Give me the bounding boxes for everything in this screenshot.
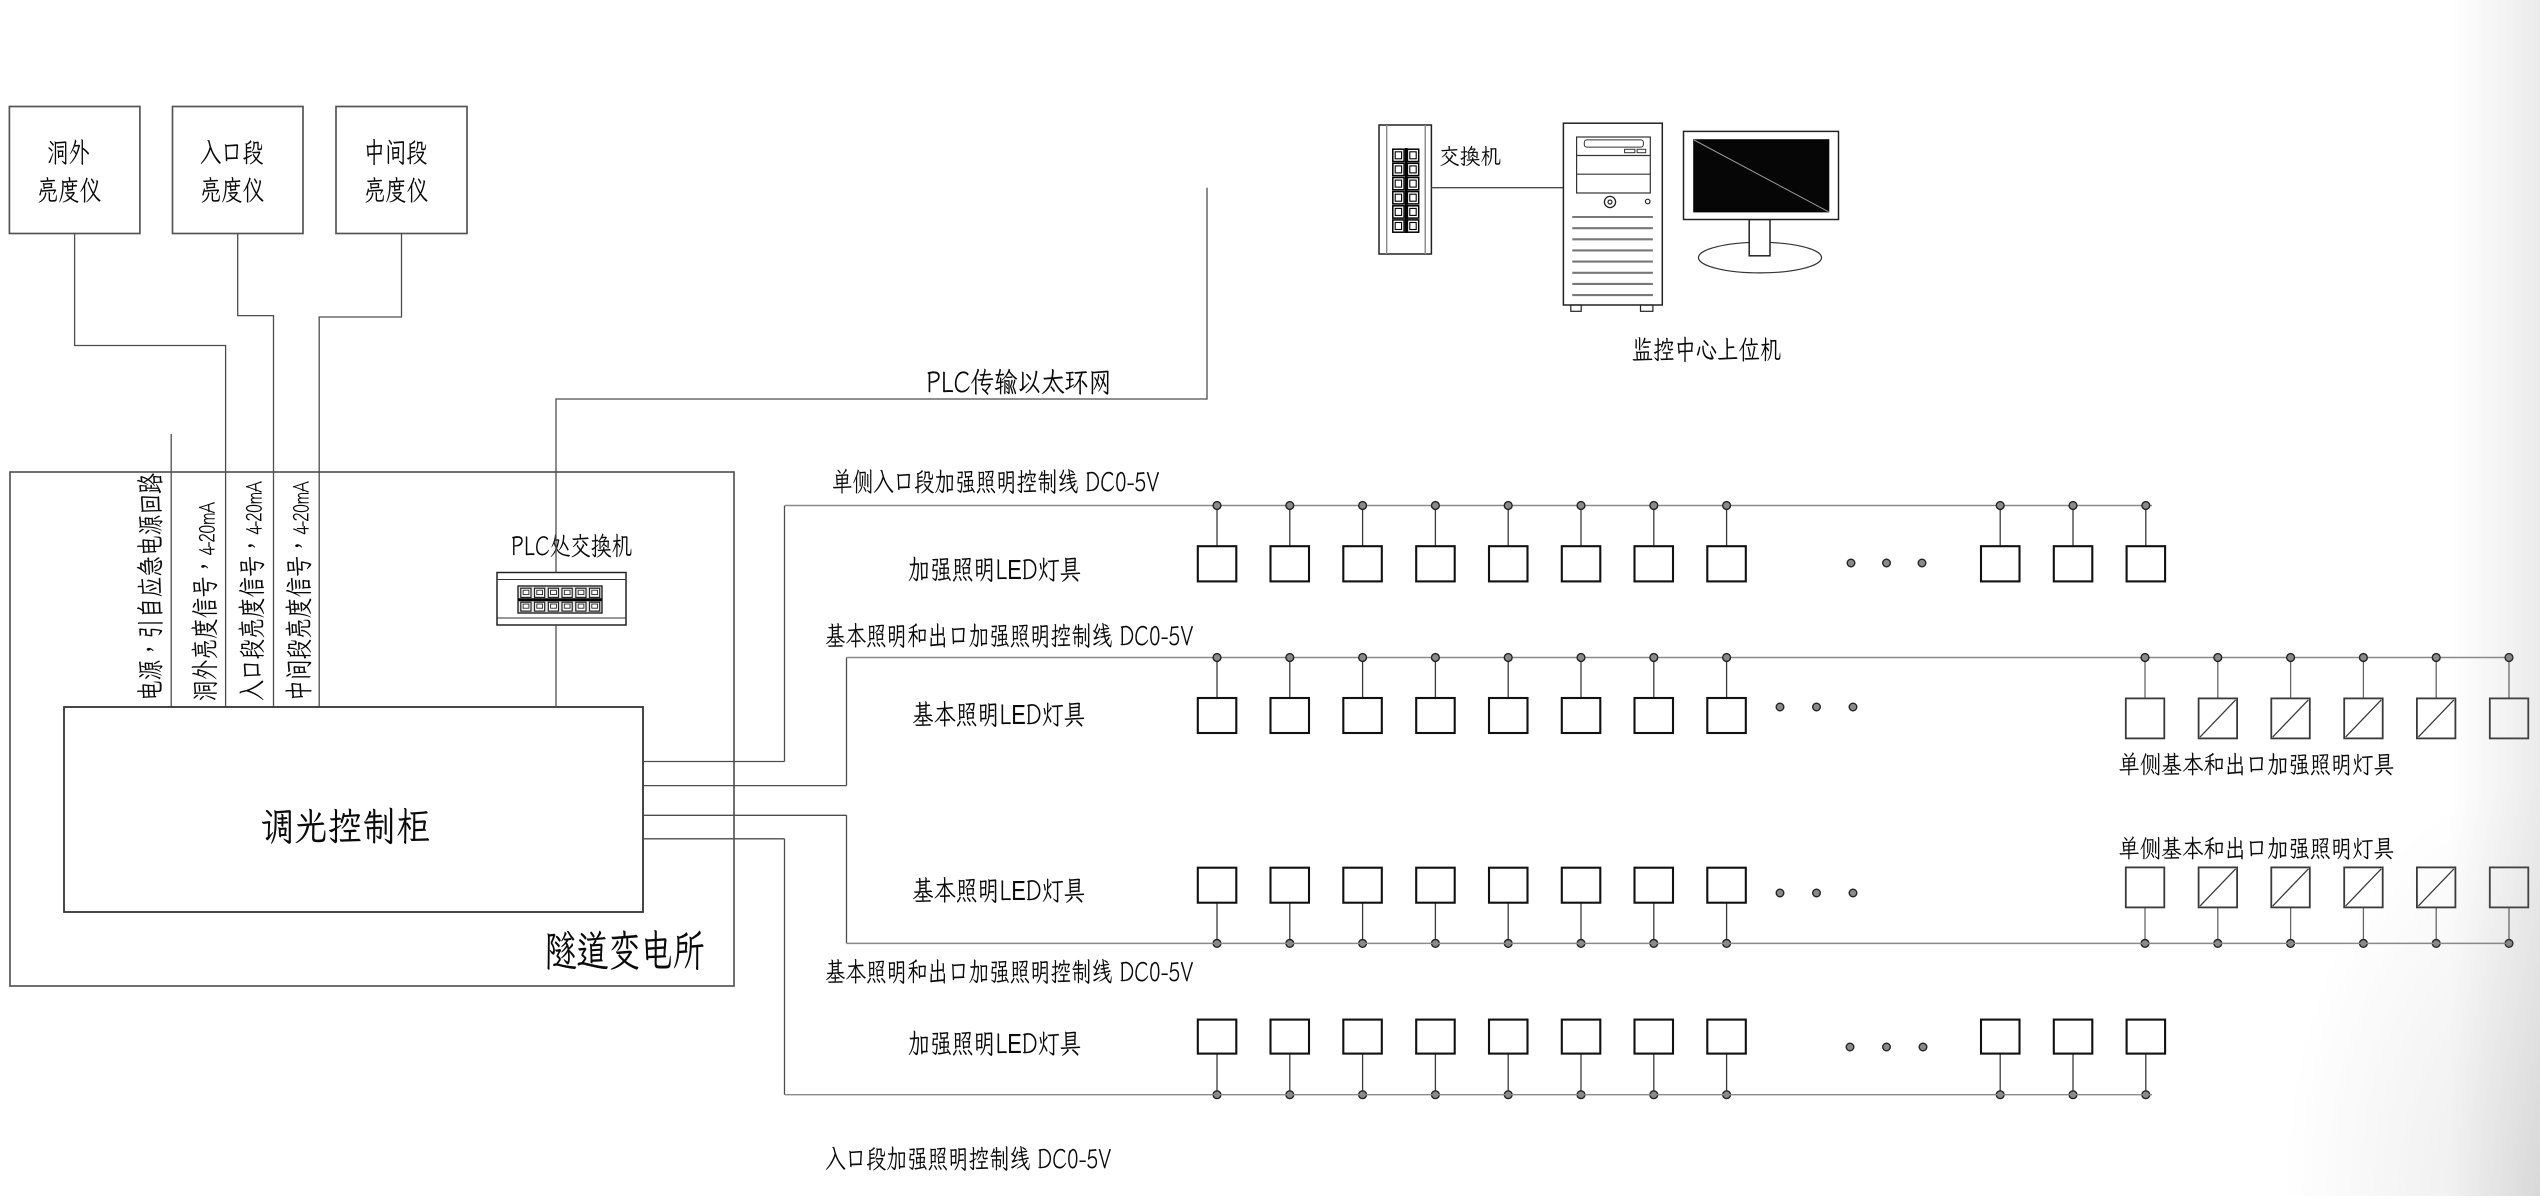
svg-text:亮度仪: 亮度仪: [37, 172, 101, 209]
svg-text:洞外: 洞外: [47, 134, 90, 171]
svg-text:入口段加强照明控制线 DC0-5V: 入口段加强照明控制线 DC0-5V: [825, 1140, 1111, 1176]
svg-text:交换机: 交换机: [1439, 142, 1501, 171]
svg-text:单侧基本和出口加强照明灯具: 单侧基本和出口加强照明灯具: [2118, 831, 2394, 864]
svg-text:基本照明和出口加强照明控制线 DC0-5V: 基本照明和出口加强照明控制线 DC0-5V: [825, 953, 1193, 989]
svg-text:入口段: 入口段: [200, 134, 264, 171]
svg-text:亮度仪: 亮度仪: [200, 172, 264, 209]
svg-text:单侧入口段加强照明控制线 DC0-5V: 单侧入口段加强照明控制线 DC0-5V: [832, 463, 1159, 499]
svg-text:单侧基本和出口加强照明灯具: 单侧基本和出口加强照明灯具: [2118, 747, 2394, 780]
svg-text:中间段: 中间段: [364, 134, 428, 171]
svg-text:基本照明LED灯具: 基本照明LED灯具: [912, 872, 1085, 909]
svg-text:隧道变电所: 隧道变电所: [544, 920, 705, 978]
svg-text:PLC处交换机: PLC处交换机: [511, 527, 632, 563]
svg-text:加强照明LED灯具: 加强照明LED灯具: [908, 551, 1081, 588]
svg-text:电源，引自应急电源回路: 电源，引自应急电源回路: [133, 473, 169, 701]
svg-text:中间段亮度信号，4-20mA: 中间段亮度信号，4-20mA: [281, 481, 317, 701]
svg-text:加强照明LED灯具: 加强照明LED灯具: [908, 1025, 1081, 1062]
svg-text:洞外亮度信号，4-20mA: 洞外亮度信号，4-20mA: [187, 501, 223, 701]
svg-text:监控中心上位机: 监控中心上位机: [1632, 331, 1781, 367]
svg-text:基本照明LED灯具: 基本照明LED灯具: [912, 696, 1085, 733]
svg-text:基本照明和出口加强照明控制线 DC0-5V: 基本照明和出口加强照明控制线 DC0-5V: [825, 617, 1193, 653]
svg-text:入口段亮度信号，4-20mA: 入口段亮度信号，4-20mA: [234, 481, 270, 701]
svg-text:PLC传输以太环网: PLC传输以太环网: [926, 362, 1112, 400]
svg-text:亮度仪: 亮度仪: [364, 172, 428, 209]
svg-text:调光控制柜: 调光控制柜: [260, 799, 430, 852]
